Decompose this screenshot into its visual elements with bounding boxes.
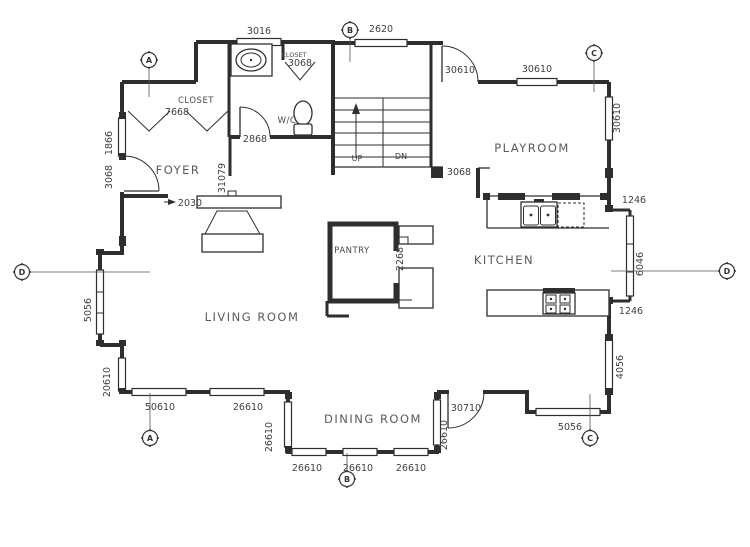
dim-east-window: 4056 <box>615 355 626 379</box>
marker-c-bottom: C <box>582 394 599 446</box>
dim-playroom-window-e: 30610 <box>612 103 623 133</box>
marker-c-top: C <box>586 45 603 92</box>
dim-dining-window-s1: 26610 <box>292 463 322 474</box>
dim-west-bay-window: 5056 <box>83 298 94 322</box>
svg-text:D: D <box>19 268 26 277</box>
dim-wc-door: 2868 <box>243 134 267 145</box>
pantry-walls <box>327 224 401 316</box>
room-label-foyer: FOYER <box>156 163 201 177</box>
dim-dining-window-s3: 26610 <box>396 463 426 474</box>
svg-text:D: D <box>724 267 731 276</box>
room-label-dining-room: DINING ROOM <box>324 412 422 426</box>
dim-bay-bottom: 1246 <box>619 306 643 317</box>
marker-a-top: A <box>141 52 158 97</box>
svg-text:A: A <box>146 56 153 65</box>
stairs-down-label: DN <box>395 152 407 161</box>
room-label-living-room: LIVING ROOM <box>205 310 300 324</box>
svg-text:A: A <box>147 434 154 443</box>
stairs-up-label: UP <box>352 154 363 163</box>
room-label-wc: W/C <box>278 116 297 126</box>
svg-text:C: C <box>587 434 593 443</box>
svg-text:B: B <box>347 26 353 35</box>
room-label-closet: CLOSET <box>178 96 214 106</box>
dim-stair-window: 2620 <box>369 24 393 35</box>
dim-kitchen-opening: 3068 <box>447 167 471 178</box>
toilet <box>294 101 312 135</box>
room-label-kitchen: KITCHEN <box>474 253 534 267</box>
dim-closet-doors: 7668 <box>165 107 189 118</box>
floor-plan-page: UP DN <box>0 0 750 547</box>
dim-sw-window: 20610 <box>102 367 113 397</box>
dim-living-window-a: 50610 <box>145 402 175 413</box>
dim-foyer-opening: 2030 <box>178 198 202 209</box>
room-label-playroom: PLAYROOM <box>494 141 570 155</box>
svg-text:C: C <box>591 49 597 58</box>
dim-se-bay-window: 5056 <box>558 422 582 433</box>
dim-rear-door: 30710 <box>451 403 481 414</box>
dim-bay-top: 1246 <box>622 195 646 206</box>
refrigerator <box>399 268 433 308</box>
room-label-pantry: PANTRY <box>334 246 370 256</box>
dim-bay-window: 6046 <box>635 252 646 276</box>
floor-plan-drawing: UP DN <box>0 0 750 547</box>
fireplace <box>197 191 281 252</box>
dim-playroom-window-n: 30610 <box>522 64 552 75</box>
dim-living-window-b: 26610 <box>233 402 263 413</box>
bath-vanity <box>231 44 272 76</box>
dim-hall: 31079 <box>217 163 228 193</box>
svg-text:B: B <box>344 475 350 484</box>
dim-front-door: 3068 <box>104 165 115 189</box>
dim-sidelight: 1866 <box>104 131 115 155</box>
dim-pantry-door: 2268 <box>395 247 406 271</box>
marker-d-left: D <box>14 264 150 281</box>
dim-entry-door: 30610 <box>445 65 475 76</box>
dim-bath-window: 3016 <box>247 26 271 37</box>
pantry-counter <box>399 226 433 244</box>
dim-dining-window-right: 26610 <box>439 420 450 450</box>
kitchen-counter <box>487 196 609 228</box>
kitchen-island <box>487 288 609 316</box>
dim-dining-window-left: 26610 <box>264 422 275 452</box>
stairs: UP DN <box>333 98 443 167</box>
